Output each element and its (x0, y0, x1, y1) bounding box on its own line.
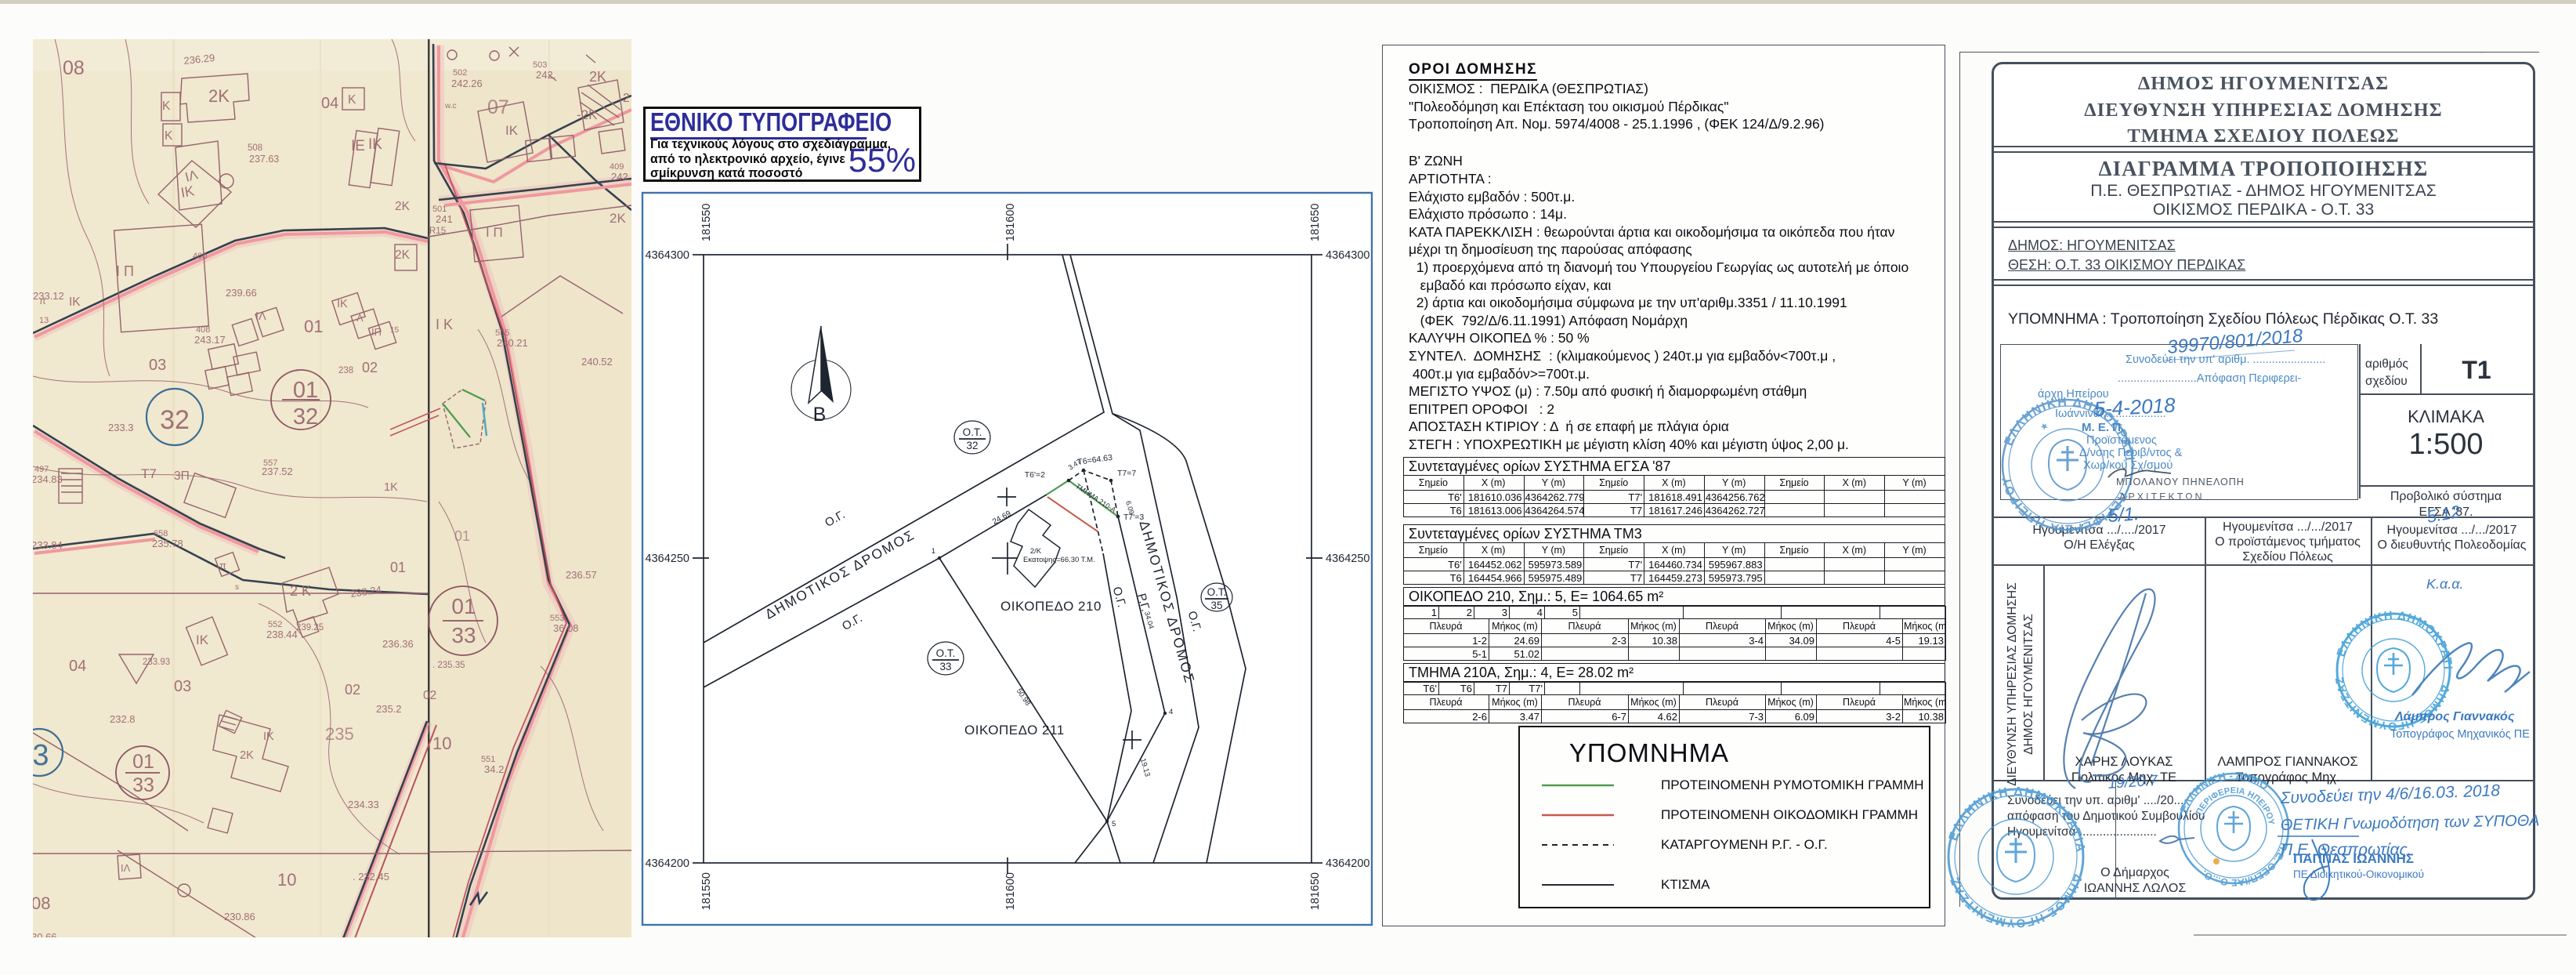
svg-text:w.c: w.c (444, 102, 456, 111)
svg-text:03: 03 (174, 678, 191, 695)
svg-text:Λ: Λ (356, 312, 364, 324)
svg-text:2K: 2K (208, 86, 230, 106)
svg-text:Ι Π: Ι Π (486, 225, 503, 240)
svg-text:234.83: 234.83 (33, 473, 63, 485)
svg-text:239.25: 239.25 (296, 623, 324, 632)
svg-text:K: K (165, 129, 173, 143)
svg-text:236.36: 236.36 (382, 638, 414, 650)
svg-text:ΙΚ: ΙΚ (263, 730, 274, 743)
svg-text:30.66: 30.66 (33, 931, 57, 937)
svg-text:239.66: 239.66 (226, 287, 257, 299)
svg-text:ΙΠ: ΙΠ (371, 326, 382, 338)
svg-text:5: 5 (1112, 820, 1116, 828)
svg-text:-2K: -2K (577, 107, 598, 122)
svg-text:4364250: 4364250 (1326, 553, 1369, 565)
svg-text:Ο.Τ.: Ο.Τ. (963, 426, 982, 438)
svg-text:. 235.35: . 235.35 (432, 661, 465, 670)
svg-text:2K: 2K (395, 248, 411, 262)
svg-text:Ι Π: Ι Π (116, 263, 134, 279)
svg-text:238: 238 (338, 366, 353, 375)
svg-text:181650: 181650 (1309, 204, 1322, 241)
svg-text:4364300: 4364300 (646, 249, 689, 262)
svg-text:R15: R15 (429, 227, 446, 236)
svg-text:236.57: 236.57 (566, 569, 597, 581)
svg-text:233.93: 233.93 (143, 658, 170, 667)
svg-text:02: 02 (345, 682, 360, 698)
svg-text:π: π (219, 560, 226, 571)
svg-text:07: 07 (487, 96, 509, 118)
svg-text:10: 10 (277, 870, 296, 890)
svg-text:35: 35 (1210, 600, 1222, 611)
svg-text:4: 4 (1169, 708, 1173, 716)
svg-text:33: 33 (451, 623, 476, 647)
svg-text:2K: 2K (610, 211, 626, 226)
svg-text:3: 3 (33, 739, 49, 772)
svg-text:ΙΚ: ΙΚ (196, 632, 209, 647)
svg-text:02: 02 (423, 689, 436, 702)
svg-text:K: K (348, 93, 356, 107)
svg-text:32: 32 (160, 405, 190, 435)
svg-text:4364300: 4364300 (1326, 249, 1369, 262)
svg-text:2K: 2K (240, 749, 254, 762)
svg-text:Τ7'=3: Τ7'=3 (1123, 513, 1144, 522)
svg-text:Β: Β (813, 404, 827, 426)
svg-text:33: 33 (132, 774, 154, 796)
svg-text:08: 08 (63, 57, 85, 79)
svg-text:03: 03 (149, 357, 166, 374)
svg-text:181550: 181550 (700, 872, 713, 910)
svg-text:Εκατοψης=66.30 Τ.Μ.: Εκατοψης=66.30 Τ.Μ. (1023, 556, 1095, 564)
svg-text:04: 04 (69, 658, 86, 675)
svg-text:32: 32 (966, 440, 978, 451)
svg-text:02: 02 (362, 360, 378, 375)
svg-text:243.17: 243.17 (194, 334, 226, 346)
svg-text:508: 508 (248, 143, 262, 153)
svg-text:s: s (235, 583, 239, 592)
svg-text:240.52: 240.52 (581, 356, 613, 368)
svg-text:Ο.Τ.: Ο.Τ. (1207, 586, 1227, 598)
svg-text:ΙΚ: ΙΚ (337, 298, 348, 310)
svg-text:4364250: 4364250 (646, 553, 689, 565)
svg-text:230.86: 230.86 (224, 911, 255, 922)
svg-text:233.12: 233.12 (33, 290, 64, 302)
svg-text:181650: 181650 (1309, 872, 1322, 910)
svg-text:241: 241 (436, 213, 453, 225)
svg-text:10: 10 (432, 734, 451, 753)
svg-text:34.2: 34.2 (484, 763, 504, 775)
svg-text:181600: 181600 (1004, 204, 1017, 241)
svg-text:01: 01 (304, 317, 323, 336)
svg-text:01: 01 (451, 594, 476, 618)
svg-text:K: K (162, 100, 171, 113)
svg-text:4364200: 4364200 (646, 857, 689, 870)
svg-text:08: 08 (33, 893, 50, 913)
svg-text:233.3: 233.3 (108, 422, 134, 433)
svg-text:ΟΙΚΟΠΕΔΟ 211: ΟΙΚΟΠΕΔΟ 211 (964, 723, 1065, 738)
svg-text:4364200: 4364200 (1326, 857, 1369, 870)
svg-text:242.: 242. (611, 171, 631, 183)
svg-text:36.08: 36.08 (553, 622, 579, 634)
svg-text:232.8: 232.8 (110, 713, 136, 725)
svg-text:2/Κ: 2/Κ (1030, 547, 1042, 556)
svg-text:Ι Κ: Ι Κ (436, 317, 453, 332)
svg-text:2: 2 (623, 92, 630, 105)
svg-text:242.: 242. (536, 69, 555, 81)
svg-text:ΙΚ: ΙΚ (69, 295, 81, 309)
svg-text:ΙΛ: ΙΛ (255, 310, 266, 323)
svg-text:2 K: 2 K (290, 583, 311, 599)
svg-text:240.21: 240.21 (497, 337, 528, 349)
svg-text:T7: T7 (141, 466, 157, 481)
svg-text:33: 33 (939, 661, 951, 672)
svg-text:01: 01 (132, 751, 154, 773)
svg-text:242.26: 242.26 (451, 78, 483, 89)
svg-text:235: 235 (325, 724, 354, 744)
svg-text:13: 13 (39, 316, 49, 325)
svg-text:235.2: 235.2 (376, 703, 402, 715)
svg-text:237.52: 237.52 (262, 466, 293, 477)
svg-text:237.63: 237.63 (249, 154, 279, 165)
svg-text:Τ6'=2: Τ6'=2 (1025, 470, 1045, 480)
svg-text:15: 15 (390, 326, 400, 335)
svg-text:π: π (39, 295, 46, 306)
svg-text:400: 400 (193, 252, 207, 261)
svg-text:ΙΕ: ΙΕ (351, 138, 365, 154)
svg-text:ΙΛ: ΙΛ (121, 862, 131, 874)
svg-text:502: 502 (453, 68, 467, 78)
svg-text:Τ7=7: Τ7=7 (1117, 469, 1136, 478)
svg-text:181550: 181550 (700, 204, 713, 241)
svg-text:ΙΚ: ΙΚ (179, 183, 195, 201)
svg-text:01: 01 (454, 528, 470, 544)
svg-text:ΟΙΚΟΠΕΔΟ 210: ΟΙΚΟΠΕΔΟ 210 (1000, 599, 1102, 614)
svg-text:1K: 1K (384, 481, 398, 494)
svg-text:2K: 2K (395, 200, 411, 213)
svg-text:2K: 2K (589, 69, 606, 85)
svg-text:32: 32 (293, 404, 318, 430)
svg-text:Ο.Τ.: Ο.Τ. (936, 647, 956, 659)
svg-text:04: 04 (321, 95, 338, 112)
svg-text:ΙΚ: ΙΚ (505, 123, 519, 138)
svg-text:. 232.45: . 232.45 (353, 871, 389, 883)
svg-text:01: 01 (293, 378, 318, 403)
svg-text:235.78: 235.78 (152, 538, 183, 549)
svg-text:1: 1 (932, 547, 935, 556)
svg-text:ΙΚ: ΙΚ (368, 136, 382, 153)
svg-text:3Π: 3Π (174, 469, 190, 483)
svg-text:01: 01 (390, 560, 406, 575)
svg-text:181600: 181600 (1004, 872, 1017, 910)
svg-text:234.33: 234.33 (348, 799, 379, 810)
svg-text:233.84: 233.84 (33, 539, 63, 551)
svg-text:238.44: 238.44 (266, 629, 298, 640)
